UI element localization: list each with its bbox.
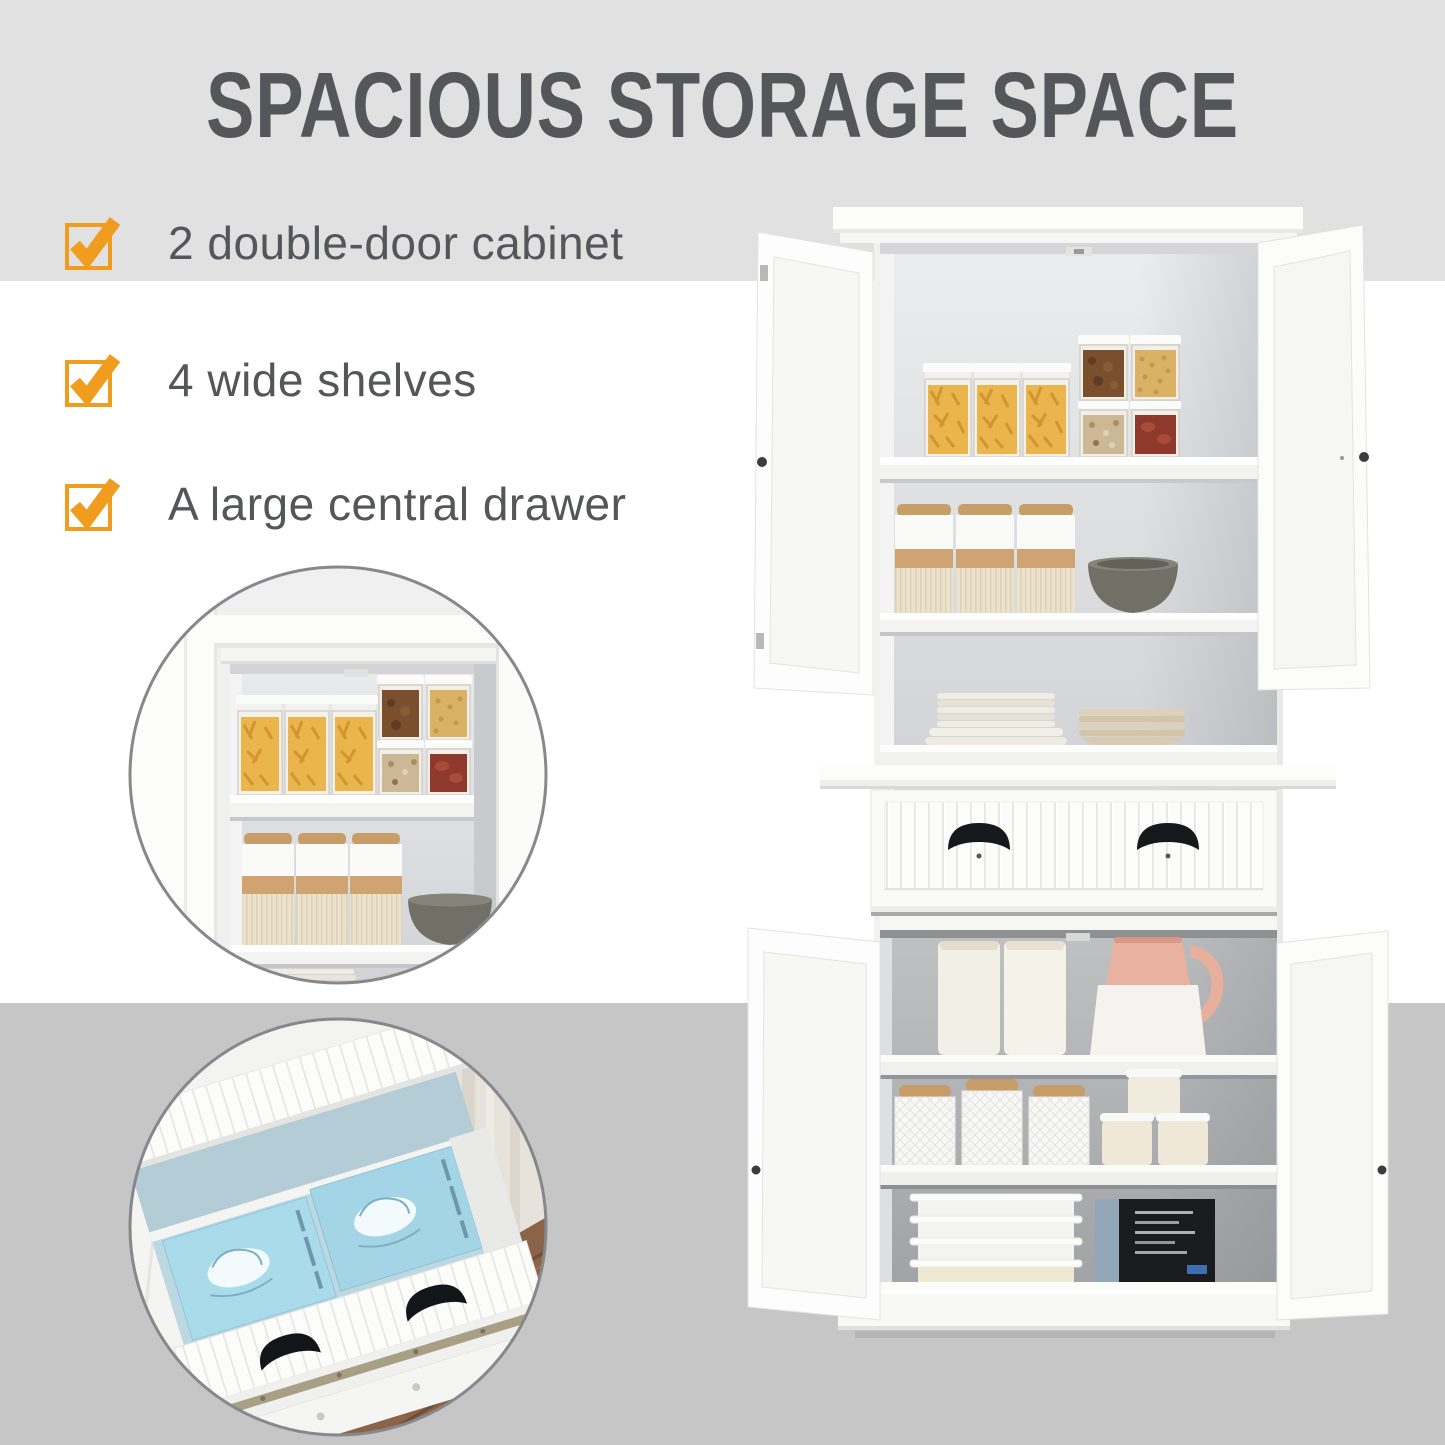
- inset-photo-open-drawer: [126, 1015, 550, 1439]
- shelf: [880, 457, 1277, 483]
- page-title: SPACIOUS STORAGE SPACE: [159, 52, 1286, 159]
- checked-checkbox-icon: [63, 214, 121, 272]
- cabinet-bottom-board: [880, 1282, 1277, 1290]
- textured-jars: [895, 1079, 1089, 1165]
- shelf: [880, 613, 1277, 636]
- ceramic-canisters: [895, 504, 1075, 613]
- feature-label: 2 double-door cabinet: [168, 216, 624, 270]
- lower-left-door: [748, 928, 880, 1320]
- shelf: [880, 1055, 1277, 1079]
- feature-item: 4 wide shelves: [63, 351, 477, 409]
- divider-board: [880, 916, 1277, 930]
- upper-left-door: [754, 232, 873, 695]
- drawer-gap: [871, 912, 1277, 916]
- feature-item: A large central drawer: [63, 475, 626, 533]
- door-hinge: [126, 1122, 144, 1158]
- feature-label: A large central drawer: [168, 477, 626, 531]
- food-tray-stack: [910, 1194, 1082, 1282]
- plate-stack: [925, 693, 1067, 745]
- inset-photo-upper-shelves: [126, 563, 550, 987]
- open-drawer: [126, 1015, 550, 1439]
- lower-right-door: [1277, 931, 1388, 1320]
- counter-board: [820, 745, 1336, 789]
- product-infographic: SPACIOUS STORAGE SPACE 2 double-door cab…: [0, 0, 1445, 1445]
- bowl-stack: [1079, 709, 1185, 747]
- black-product-box: [1095, 1199, 1215, 1282]
- upper-right-door: [1258, 225, 1370, 690]
- feature-label: 4 wide shelves: [168, 353, 477, 407]
- checked-checkbox-icon: [63, 351, 121, 409]
- central-drawer: [871, 790, 1277, 912]
- pasta-storage-containers: [923, 363, 1071, 457]
- cabinet-plinth: [838, 1290, 1290, 1338]
- shelf: [880, 1165, 1277, 1189]
- checked-checkbox-icon: [63, 475, 121, 533]
- cabinet-top-board: [833, 207, 1303, 246]
- feature-item: 2 double-door cabinet: [63, 214, 624, 272]
- main-product-photo-pantry-cabinet: [690, 195, 1400, 1360]
